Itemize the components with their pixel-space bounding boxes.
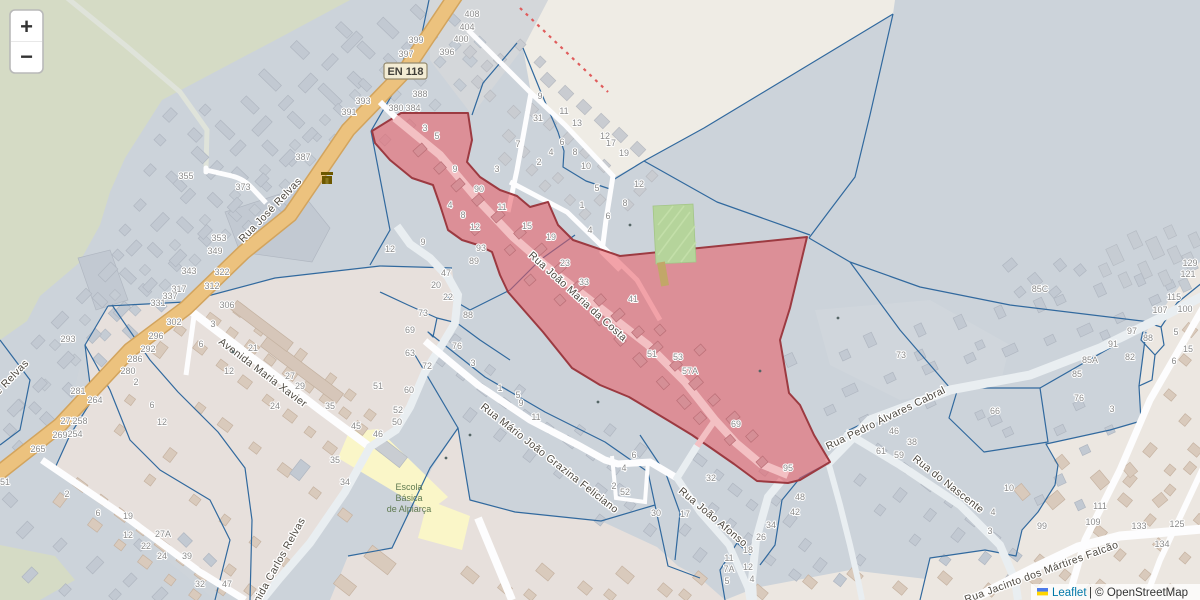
svg-text:109: 109 (1085, 517, 1100, 527)
svg-text:296: 296 (148, 331, 163, 341)
svg-text:66: 66 (990, 406, 1000, 416)
svg-text:269: 269 (52, 430, 67, 440)
svg-text:69: 69 (731, 419, 741, 429)
svg-text:46: 46 (373, 429, 383, 439)
svg-text:404: 404 (459, 22, 474, 32)
svg-text:19: 19 (546, 232, 556, 242)
svg-text:53: 53 (673, 352, 683, 362)
svg-text:292: 292 (140, 344, 155, 354)
svg-text:95: 95 (783, 463, 793, 473)
svg-text:13: 13 (572, 118, 582, 128)
svg-text:6: 6 (149, 400, 154, 410)
svg-text:6: 6 (198, 339, 203, 349)
svg-text:89: 89 (469, 256, 479, 266)
svg-text:6: 6 (95, 508, 100, 518)
svg-text:27A: 27A (155, 529, 171, 539)
svg-text:4: 4 (587, 225, 592, 235)
svg-text:20: 20 (431, 280, 441, 290)
svg-text:22: 22 (141, 541, 151, 551)
svg-text:99: 99 (1037, 521, 1047, 531)
svg-text:121: 121 (1180, 269, 1195, 279)
svg-text:3: 3 (987, 526, 992, 536)
svg-text:6: 6 (605, 211, 610, 221)
svg-text:| © OpenStreetMap: | © OpenStreetMap (1089, 587, 1188, 599)
svg-text:4: 4 (447, 200, 452, 210)
svg-text:12: 12 (157, 417, 167, 427)
svg-text:46: 46 (889, 426, 899, 436)
svg-text:50: 50 (392, 417, 402, 427)
svg-text:73: 73 (896, 350, 906, 360)
svg-text:90: 90 (474, 184, 484, 194)
svg-text:125: 125 (1169, 519, 1184, 529)
svg-text:61: 61 (876, 446, 886, 456)
svg-text:Escola: Escola (395, 482, 422, 492)
svg-text:11: 11 (497, 202, 506, 212)
svg-text:27: 27 (285, 371, 295, 381)
svg-text:391: 391 (341, 107, 356, 117)
svg-text:52: 52 (620, 487, 630, 497)
svg-text:22: 22 (443, 292, 453, 302)
svg-text:396: 396 (439, 47, 454, 57)
svg-text:21: 21 (248, 343, 258, 353)
svg-text:59: 59 (894, 450, 904, 460)
svg-text:41: 41 (628, 294, 638, 304)
svg-text:129: 129 (1182, 258, 1197, 268)
svg-text:2: 2 (64, 489, 69, 499)
svg-text:29: 29 (295, 381, 305, 391)
svg-text:85A: 85A (1082, 355, 1098, 365)
svg-text:387: 387 (295, 152, 310, 162)
svg-text:2: 2 (133, 377, 138, 387)
svg-text:3: 3 (494, 164, 499, 174)
svg-text:76: 76 (1074, 393, 1084, 403)
svg-text:12: 12 (224, 366, 234, 376)
svg-text:399: 399 (408, 35, 423, 45)
svg-text:11: 11 (724, 553, 733, 563)
svg-text:393: 393 (355, 96, 370, 106)
svg-text:23: 23 (560, 258, 570, 268)
svg-text:5: 5 (594, 183, 599, 193)
svg-text:355: 355 (178, 171, 193, 181)
svg-text:4: 4 (548, 147, 553, 157)
svg-text:10: 10 (581, 161, 591, 171)
svg-text:51: 51 (373, 381, 383, 391)
svg-text:11: 11 (531, 412, 540, 422)
svg-text:42: 42 (790, 507, 800, 517)
svg-text:Leaflet: Leaflet (1052, 587, 1087, 599)
svg-text:6: 6 (1171, 356, 1176, 366)
svg-text:34: 34 (766, 520, 776, 530)
svg-text:88: 88 (1143, 333, 1153, 343)
svg-text:32: 32 (706, 473, 716, 483)
svg-text:4: 4 (990, 507, 995, 517)
svg-text:12: 12 (470, 222, 480, 232)
svg-text:24: 24 (270, 401, 280, 411)
svg-text:281: 281 (70, 386, 85, 396)
svg-text:32: 32 (195, 579, 205, 589)
svg-text:397: 397 (398, 49, 413, 59)
svg-text:12: 12 (743, 562, 753, 572)
svg-text:1: 1 (579, 200, 584, 210)
svg-text:286: 286 (127, 354, 142, 364)
svg-text:380: 380 (388, 103, 403, 113)
svg-text:12: 12 (634, 179, 644, 189)
svg-text:4: 4 (749, 574, 754, 584)
svg-text:10: 10 (1004, 483, 1014, 493)
svg-text:−: − (20, 44, 33, 69)
svg-text:48: 48 (795, 492, 805, 502)
svg-text:60: 60 (404, 385, 414, 395)
svg-text:293: 293 (60, 334, 75, 344)
svg-text:69: 69 (405, 325, 415, 335)
svg-text:Básica: Básica (395, 493, 422, 503)
svg-text:6: 6 (631, 450, 636, 460)
svg-text:30: 30 (651, 508, 661, 518)
svg-text:63: 63 (405, 348, 415, 358)
svg-text:9: 9 (518, 398, 523, 408)
svg-text:+: + (20, 14, 33, 39)
svg-text:265: 265 (30, 444, 45, 454)
svg-text:12: 12 (600, 131, 610, 141)
svg-text:3: 3 (210, 319, 215, 329)
svg-text:52: 52 (393, 405, 403, 415)
svg-text:343: 343 (181, 266, 196, 276)
svg-text:17: 17 (680, 509, 690, 519)
svg-text:EN 118: EN 118 (387, 66, 423, 78)
svg-text:254: 254 (67, 429, 82, 439)
svg-text:6: 6 (559, 137, 564, 147)
svg-text:8: 8 (622, 198, 627, 208)
svg-text:133: 133 (1131, 521, 1146, 531)
svg-text:85: 85 (1072, 369, 1082, 379)
svg-text:115: 115 (1167, 292, 1181, 302)
svg-text:331: 331 (150, 298, 165, 308)
svg-text:51: 51 (647, 349, 657, 359)
svg-text:34: 34 (340, 477, 350, 487)
svg-text:322: 322 (214, 267, 229, 277)
svg-text:400: 400 (453, 34, 468, 44)
svg-text:8: 8 (460, 210, 465, 220)
svg-text:302: 302 (166, 317, 181, 327)
svg-text:5: 5 (434, 131, 439, 141)
svg-text:349: 349 (207, 246, 222, 256)
svg-text:31: 31 (533, 113, 543, 123)
svg-text:388: 388 (412, 89, 427, 99)
svg-text:de Alpiarça: de Alpiarça (387, 504, 432, 514)
svg-text:15: 15 (522, 221, 532, 231)
svg-text:93: 93 (476, 243, 486, 253)
svg-text:35: 35 (330, 455, 340, 465)
svg-text:1: 1 (497, 383, 502, 393)
svg-text:100: 100 (1177, 304, 1192, 314)
svg-text:73: 73 (418, 308, 428, 318)
svg-text:3: 3 (422, 123, 427, 133)
svg-text:9: 9 (537, 91, 542, 101)
svg-text:51: 51 (0, 477, 10, 487)
svg-text:12: 12 (385, 244, 395, 254)
svg-text:5: 5 (1173, 327, 1178, 337)
svg-text:408: 408 (464, 9, 479, 19)
svg-text:76: 76 (452, 341, 462, 351)
svg-text:5: 5 (724, 576, 729, 586)
svg-text:306: 306 (219, 300, 234, 310)
svg-text:280: 280 (120, 366, 135, 376)
svg-text:4: 4 (621, 463, 626, 473)
svg-text:2: 2 (611, 481, 616, 491)
svg-text:264: 264 (87, 395, 102, 405)
svg-text:384: 384 (405, 103, 420, 113)
svg-text:3: 3 (1109, 404, 1114, 414)
svg-text:35: 35 (325, 401, 335, 411)
svg-text:111: 111 (1093, 501, 1107, 511)
svg-text:19: 19 (619, 148, 629, 158)
svg-text:24: 24 (157, 551, 167, 561)
svg-text:353: 353 (211, 233, 226, 243)
svg-text:97: 97 (1127, 326, 1137, 336)
svg-text:8: 8 (572, 147, 577, 157)
svg-text:91: 91 (1108, 339, 1118, 349)
svg-text:33: 33 (579, 277, 589, 287)
svg-text:7: 7 (515, 139, 520, 149)
svg-text:12: 12 (123, 530, 133, 540)
svg-text:312: 312 (204, 281, 219, 291)
svg-text:373: 373 (235, 182, 250, 192)
svg-text:7A: 7A (723, 564, 734, 574)
svg-text:26: 26 (756, 532, 766, 542)
svg-text:11: 11 (559, 106, 568, 116)
svg-text:85C: 85C (1032, 284, 1049, 294)
svg-text:3: 3 (470, 358, 475, 368)
svg-text:2: 2 (536, 157, 541, 167)
svg-text:38: 38 (907, 437, 917, 447)
svg-text:19: 19 (123, 511, 133, 521)
svg-text:47: 47 (222, 579, 232, 589)
svg-text:39: 39 (182, 551, 192, 561)
svg-text:72: 72 (422, 361, 432, 371)
svg-text:107: 107 (1152, 305, 1167, 315)
svg-text:47: 47 (441, 268, 451, 278)
svg-text:82: 82 (1125, 352, 1135, 362)
svg-text:18: 18 (743, 545, 753, 555)
svg-text:134: 134 (1154, 539, 1169, 549)
svg-text:45: 45 (351, 421, 361, 431)
svg-text:57A: 57A (682, 366, 698, 376)
svg-text:9: 9 (452, 164, 457, 174)
svg-text:258: 258 (72, 416, 87, 426)
svg-text:15: 15 (1183, 344, 1193, 354)
svg-text:88: 88 (463, 310, 473, 320)
svg-text:9: 9 (420, 237, 425, 247)
